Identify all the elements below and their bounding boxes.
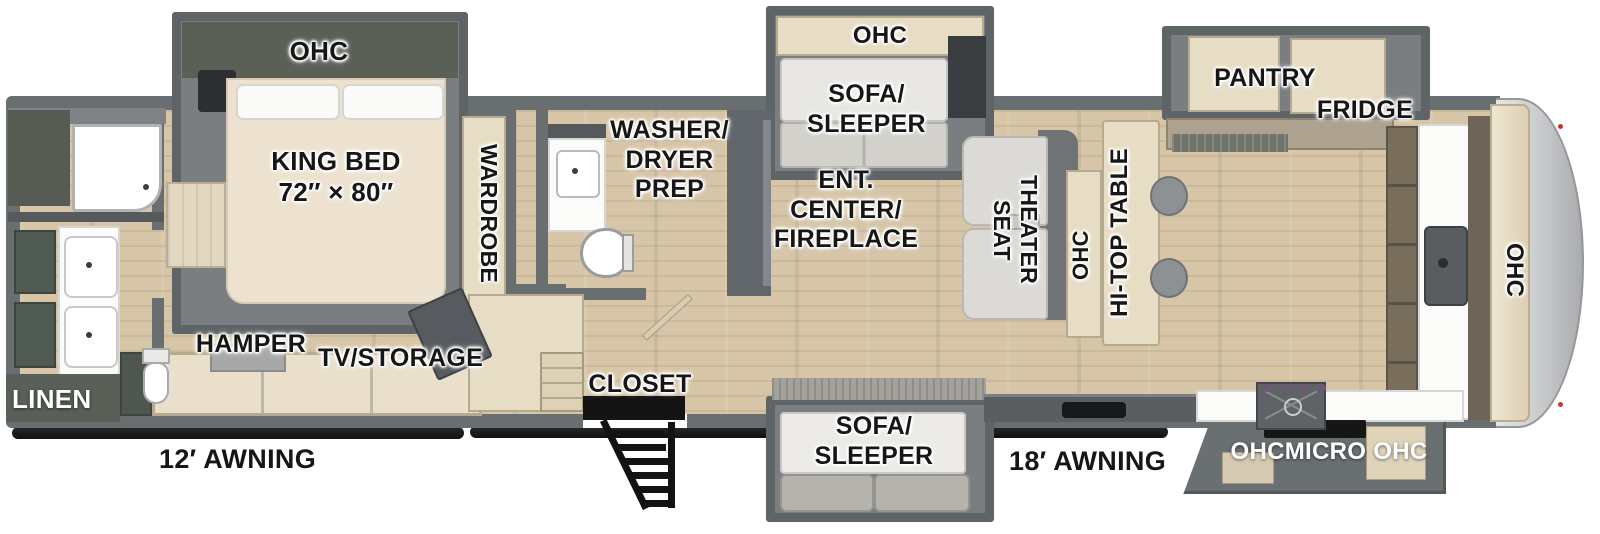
burner-knob xyxy=(1264,384,1272,392)
theater-seat-label: THEATER SEAT xyxy=(966,140,1042,320)
rv-floor-plan: LINEN OHC KING BED 72″ × 80″ HAMPER TV/S… xyxy=(0,0,1600,534)
wardrobe-label: WARDROBE xyxy=(466,124,502,304)
pillow xyxy=(236,84,340,120)
front-ohc-wall xyxy=(1468,116,1492,420)
step-tread xyxy=(615,444,666,451)
rear-bath-cabinet xyxy=(8,110,70,206)
linen-label: LINEN xyxy=(12,384,116,415)
sink-drain xyxy=(86,262,92,268)
awning-18ft-label: 18′ AWNING xyxy=(1000,446,1175,478)
toilet-tank xyxy=(622,234,634,272)
toilet xyxy=(143,362,169,404)
sofa-sleeper-top-label: SOFA/ SLEEPER xyxy=(784,80,949,139)
closet-drawers xyxy=(540,352,584,412)
bedroom-door-leaf xyxy=(166,182,226,268)
pantry-label: PANTRY xyxy=(1205,64,1325,94)
sofa-ohc-label: OHC xyxy=(776,22,984,50)
front-ohc-label: OHC xyxy=(1492,130,1528,410)
sofa-back-ledge xyxy=(772,378,986,400)
pillow xyxy=(342,84,444,120)
burner-knob xyxy=(1300,384,1308,392)
hi-top-table-label: HI-TOP TABLE xyxy=(1106,128,1156,338)
step-tread xyxy=(622,458,668,465)
closet-label: CLOSET xyxy=(580,370,700,400)
cap-marker-dot xyxy=(1558,124,1563,129)
sofa-sleeper-bottom-label: SOFA/ SLEEPER xyxy=(790,412,958,471)
burner-center xyxy=(1284,398,1302,416)
fridge-label: FRIDGE xyxy=(1305,96,1425,126)
burner-knob xyxy=(1282,384,1290,392)
vanity-cabinet xyxy=(14,230,56,294)
king-bed-label: KING BED 72″ × 80″ xyxy=(246,146,426,207)
sink-drain xyxy=(86,332,92,338)
vanity-cabinet xyxy=(14,302,56,368)
sink-drain xyxy=(572,168,578,174)
bath-divider-shelf xyxy=(8,212,164,222)
counter-drainboard xyxy=(1172,134,1288,152)
burner-knob xyxy=(1318,384,1326,392)
awning-12ft-label: 12′ AWNING xyxy=(150,444,325,476)
cap-marker-dot xyxy=(1558,402,1563,407)
step-rail-right xyxy=(668,422,675,508)
faucet xyxy=(1438,258,1448,268)
kitchen-ohc-label: OHC xyxy=(1068,180,1100,330)
sofa-cushion xyxy=(874,474,970,512)
mid-bath-left-wall xyxy=(536,108,548,298)
bedroom-ohc-label: OHC xyxy=(182,36,456,67)
kitchen-cabinet-column xyxy=(1386,126,1418,418)
hamper-label: HAMPER xyxy=(186,330,316,360)
ohc-micro-ohc-label: OHCMICRO OHC xyxy=(1218,438,1440,466)
entry-landing xyxy=(583,396,685,420)
bar-sink xyxy=(1062,402,1126,418)
washer-dryer-prep-label: WASHER/ DRYER PREP xyxy=(592,116,747,205)
step-tread xyxy=(608,430,664,437)
ent-center-label: ENT. CENTER/ FIREPLACE xyxy=(770,166,922,255)
awning-rod-12ft xyxy=(12,427,464,439)
shower-drain xyxy=(143,184,149,190)
stove-counter xyxy=(1196,390,1464,422)
shower xyxy=(72,124,162,212)
sofa-cushion xyxy=(780,474,874,512)
tv-storage-label: TV/STORAGE xyxy=(318,344,453,374)
